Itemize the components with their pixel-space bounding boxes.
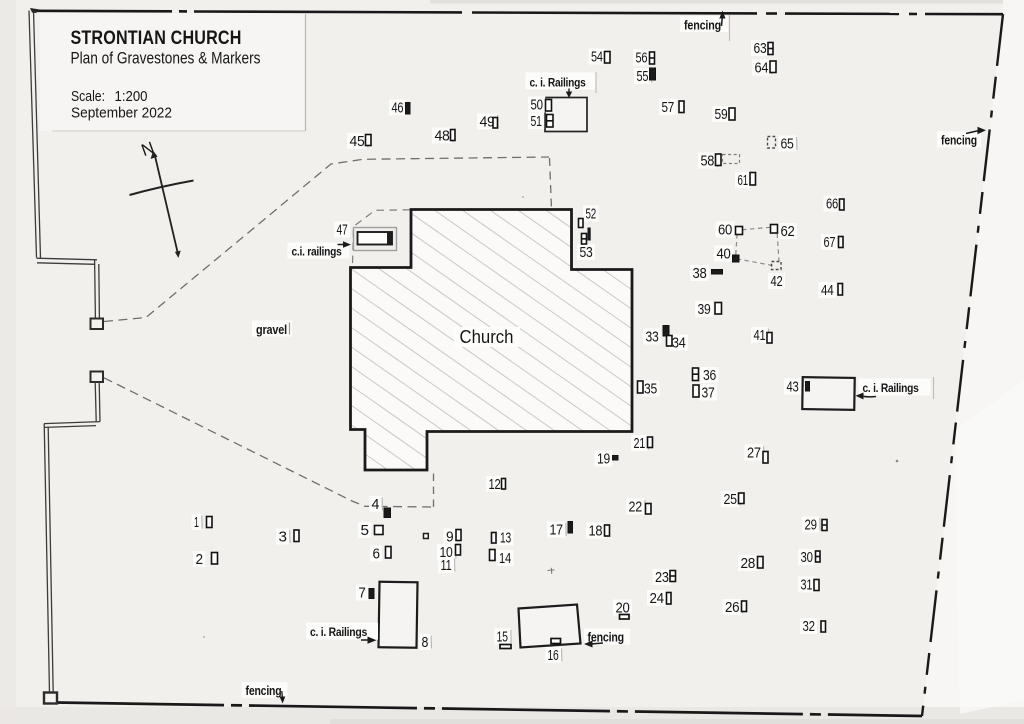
svg-text:19: 19	[597, 452, 610, 468]
svg-text:52: 52	[586, 207, 597, 223]
svg-text:45: 45	[350, 134, 365, 150]
svg-text:56: 56	[636, 51, 648, 67]
svg-text:Church: Church	[460, 326, 514, 347]
svg-text:25: 25	[724, 492, 738, 508]
svg-text:15: 15	[497, 630, 509, 646]
svg-text:61: 61	[738, 173, 749, 189]
svg-text:c. i. Railings: c. i. Railings	[530, 76, 586, 90]
svg-text:31: 31	[801, 578, 813, 594]
svg-text:9: 9	[446, 530, 454, 546]
svg-text:36: 36	[703, 368, 716, 384]
svg-text:55: 55	[637, 69, 649, 85]
svg-text:c. i. Railings: c. i. Railings	[863, 381, 919, 395]
svg-text:41: 41	[754, 328, 766, 344]
svg-text:59: 59	[715, 107, 728, 123]
svg-text:fencing: fencing	[246, 684, 282, 698]
svg-text:57: 57	[662, 100, 675, 116]
svg-text:63: 63	[754, 41, 767, 57]
svg-text:Plan of Gravestones & Markers: Plan of Gravestones & Markers	[71, 49, 261, 68]
svg-text:c. i. Railings: c. i. Railings	[310, 625, 367, 639]
svg-text:48: 48	[435, 129, 450, 145]
svg-text:34: 34	[672, 336, 686, 352]
svg-text:13: 13	[500, 531, 511, 547]
svg-text:37: 37	[702, 386, 715, 402]
svg-text:50: 50	[531, 98, 544, 114]
svg-text:28: 28	[741, 556, 756, 572]
svg-text:27: 27	[747, 446, 761, 462]
svg-text:66: 66	[826, 197, 838, 213]
svg-text:2: 2	[196, 552, 204, 568]
svg-text:23: 23	[655, 570, 669, 586]
svg-text:53: 53	[580, 245, 593, 261]
svg-text:40: 40	[717, 247, 731, 263]
svg-text:c.i. railings: c.i. railings	[292, 245, 342, 259]
svg-text:6: 6	[373, 547, 381, 563]
svg-text:35: 35	[644, 382, 657, 398]
svg-text:22: 22	[629, 500, 643, 516]
svg-text:September 2022: September 2022	[71, 105, 172, 122]
svg-text:67: 67	[824, 235, 836, 251]
svg-text:7: 7	[359, 586, 366, 602]
svg-text:Scale:: Scale:	[71, 88, 105, 105]
svg-text:24: 24	[650, 591, 665, 607]
svg-text:65: 65	[781, 137, 794, 153]
svg-text:4: 4	[372, 497, 380, 513]
svg-text:17: 17	[550, 523, 564, 539]
svg-text:26: 26	[725, 600, 740, 616]
svg-text:29: 29	[805, 518, 818, 534]
svg-text:3: 3	[279, 530, 288, 546]
svg-text:12: 12	[489, 477, 501, 493]
svg-text:54: 54	[591, 50, 603, 66]
svg-text:STRONTIAN CHURCH: STRONTIAN CHURCH	[71, 27, 242, 49]
svg-text:fencing: fencing	[684, 19, 721, 33]
svg-text:58: 58	[701, 154, 715, 170]
svg-text:47: 47	[337, 223, 348, 239]
svg-text:32: 32	[803, 619, 815, 635]
svg-text:33: 33	[646, 330, 659, 346]
svg-text:43: 43	[787, 380, 799, 396]
svg-text:39: 39	[698, 302, 711, 318]
svg-text:5: 5	[361, 523, 370, 539]
svg-text:1:200: 1:200	[115, 88, 148, 105]
svg-text:gravel: gravel	[256, 322, 287, 337]
svg-text:1: 1	[194, 515, 199, 531]
svg-text:21: 21	[634, 436, 646, 452]
svg-text:62: 62	[781, 224, 795, 240]
svg-text:14: 14	[499, 551, 511, 567]
svg-text:fencing: fencing	[588, 631, 625, 645]
svg-text:42: 42	[771, 274, 783, 290]
svg-text:64: 64	[755, 61, 769, 77]
svg-text:30: 30	[801, 550, 813, 566]
svg-text:51: 51	[531, 114, 542, 130]
svg-text:60: 60	[718, 223, 732, 239]
svg-text:16: 16	[548, 648, 559, 664]
svg-text:11: 11	[441, 558, 452, 574]
svg-text:38: 38	[693, 266, 707, 282]
svg-text:46: 46	[392, 101, 404, 117]
svg-text:44: 44	[821, 283, 834, 299]
svg-text:8: 8	[422, 635, 429, 651]
svg-text:fencing: fencing	[941, 134, 977, 148]
svg-text:18: 18	[589, 524, 603, 540]
